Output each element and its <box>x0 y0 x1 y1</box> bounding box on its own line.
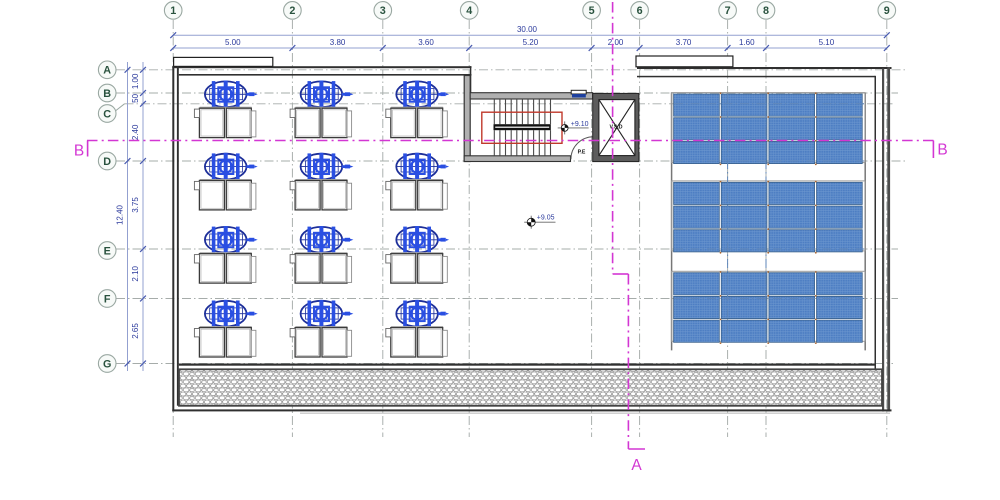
svg-text:F: F <box>104 293 111 305</box>
svg-text:V.S.D: V.S.D <box>609 124 622 130</box>
svg-text:D: D <box>103 156 111 168</box>
svg-text:5: 5 <box>589 5 595 17</box>
svg-text:3.60: 3.60 <box>418 38 434 47</box>
svg-text:+9.10: +9.10 <box>571 121 589 128</box>
svg-text:5.20: 5.20 <box>523 38 539 47</box>
svg-text:B: B <box>103 88 111 100</box>
svg-text:2.65: 2.65 <box>131 323 140 339</box>
svg-text:1: 1 <box>170 5 176 17</box>
svg-text:4: 4 <box>466 5 472 17</box>
svg-text:50: 50 <box>131 93 140 102</box>
svg-text:A: A <box>631 457 642 474</box>
svg-text:2.40: 2.40 <box>131 124 140 140</box>
svg-text:8: 8 <box>763 5 769 17</box>
svg-text:A: A <box>103 65 111 77</box>
svg-text:B: B <box>74 143 84 160</box>
svg-text:1.00: 1.00 <box>131 73 140 89</box>
svg-text:5.00: 5.00 <box>225 38 241 47</box>
svg-text:12.40: 12.40 <box>116 204 125 225</box>
svg-text:2.10: 2.10 <box>131 265 140 281</box>
svg-text:3.75: 3.75 <box>131 197 140 213</box>
svg-text:30.00: 30.00 <box>517 25 538 34</box>
svg-text:1.60: 1.60 <box>739 38 755 47</box>
svg-text:6: 6 <box>637 5 643 17</box>
svg-text:9: 9 <box>884 5 890 17</box>
svg-text:E: E <box>104 245 111 257</box>
svg-text:2: 2 <box>289 5 295 17</box>
svg-text:3.70: 3.70 <box>676 38 692 47</box>
svg-text:+9.05: +9.05 <box>537 215 555 222</box>
svg-text:5.10: 5.10 <box>819 38 835 47</box>
svg-text:7: 7 <box>725 5 731 17</box>
svg-text:G: G <box>103 358 111 370</box>
svg-text:2.00: 2.00 <box>608 38 624 47</box>
svg-text:P.E: P.E <box>578 150 586 156</box>
svg-text:B: B <box>937 142 947 159</box>
svg-text:3: 3 <box>380 5 386 17</box>
svg-text:3.80: 3.80 <box>330 38 346 47</box>
svg-text:C: C <box>103 108 111 120</box>
